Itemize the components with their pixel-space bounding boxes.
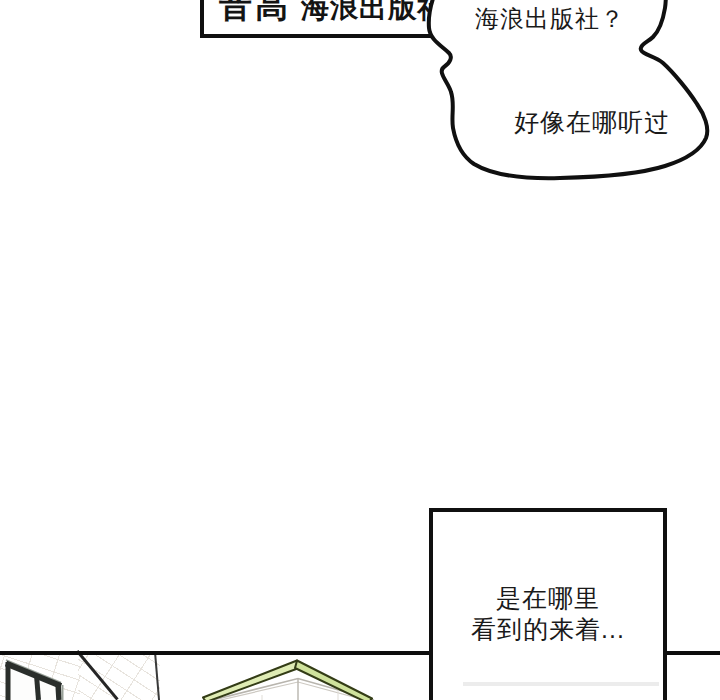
window-mullion xyxy=(37,675,39,700)
caption-box: 是在哪里 看到的来着... xyxy=(429,508,667,700)
comic-page: 音高 海浪出版社 xyxy=(0,0,720,700)
roof-band-left xyxy=(203,661,299,700)
caption-line1: 是在哪里 xyxy=(433,583,663,614)
bubble-line1: 海浪出版社？ xyxy=(428,3,672,35)
window-icon xyxy=(0,655,80,700)
bubble-line2: 好像在哪听过 xyxy=(470,106,714,139)
caption-text: 是在哪里 看到的来着... xyxy=(433,512,663,645)
window-frame-right xyxy=(58,683,59,700)
green-roof-icon xyxy=(195,655,380,700)
caption-line2: 看到的来着... xyxy=(433,614,663,645)
faint-background-stripe xyxy=(463,682,659,686)
sign-large-text: 音高 xyxy=(219,0,291,29)
tile-grid xyxy=(78,655,160,700)
tiled-wall-right xyxy=(78,655,160,700)
